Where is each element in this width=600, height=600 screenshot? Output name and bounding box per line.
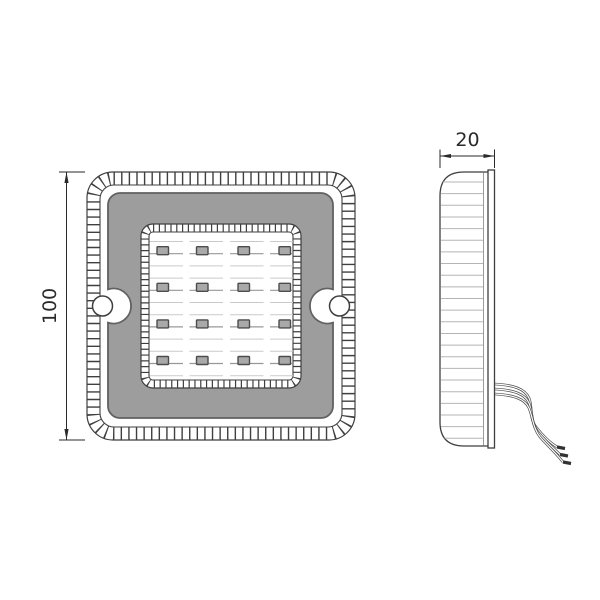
wire-tip <box>557 447 565 449</box>
arrowhead-left <box>440 154 451 158</box>
dimension-width: 20 <box>440 129 495 168</box>
wire-tip <box>560 455 568 457</box>
led-chip <box>197 247 209 255</box>
led-chip <box>238 320 250 328</box>
technical-drawing: 100 20 <box>0 0 600 600</box>
led-chip <box>238 247 250 255</box>
arrowhead-right <box>484 154 495 158</box>
led-chip <box>279 247 291 255</box>
front-plate <box>488 170 495 448</box>
arrowhead-up <box>64 172 68 183</box>
led-chip <box>238 357 250 365</box>
led-chip <box>279 283 291 291</box>
side-view: 20 <box>440 129 571 464</box>
led-chip <box>279 320 291 328</box>
mounting-hole-left <box>93 296 113 316</box>
dimension-width-label: 20 <box>455 129 479 151</box>
led-chip <box>157 247 169 255</box>
dimension-height: 100 <box>39 172 85 440</box>
led-chip <box>157 283 169 291</box>
power-wires <box>495 384 572 464</box>
wire-tip <box>563 462 571 464</box>
drawing-canvas: 100 20 <box>0 0 600 600</box>
led-chip <box>197 283 209 291</box>
led-chip <box>157 357 169 365</box>
wire-core <box>495 384 558 447</box>
led-chip <box>197 320 209 328</box>
mounting-hole-right <box>330 296 350 316</box>
led-chip <box>197 357 209 365</box>
led-chip <box>157 320 169 328</box>
led-chip <box>238 283 250 291</box>
side-body-outline <box>440 172 489 446</box>
dimension-height-label: 100 <box>39 288 61 324</box>
front-view: 100 <box>39 172 355 440</box>
led-chip <box>279 357 291 365</box>
arrowhead-down <box>64 429 68 440</box>
